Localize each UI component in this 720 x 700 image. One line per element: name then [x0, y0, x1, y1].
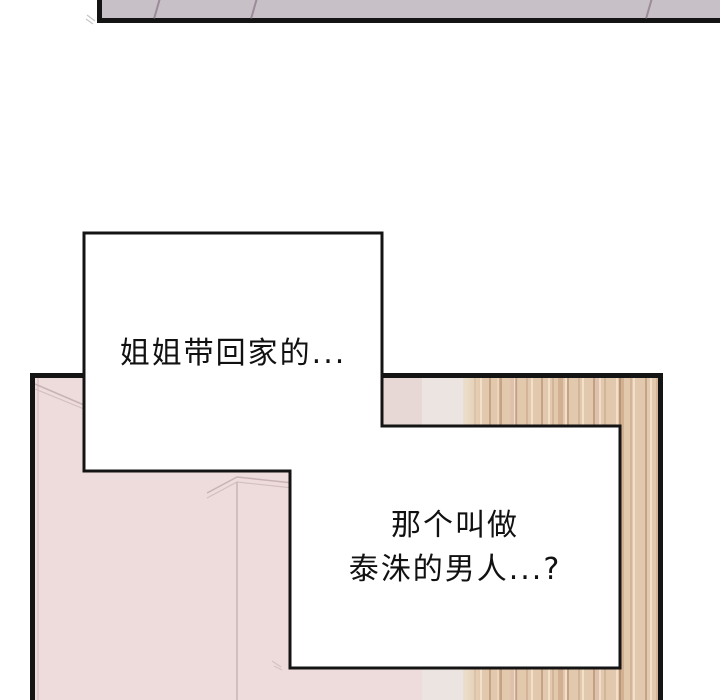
speech-bubble-2-line-2: 泰洙的男人...? [290, 548, 620, 592]
comic-page: 姐姐带回家的... 那个叫做 泰洙的男人...? [0, 0, 720, 700]
sketch-marks-panel-corner [86, 15, 95, 24]
speech-bubble-2-line-1: 那个叫做 [290, 504, 620, 548]
speech-bubble-1-text: 姐姐带回家的... [84, 336, 382, 372]
speech-bubble-2-text: 那个叫做 泰洙的男人...? [290, 504, 620, 592]
sketch-marks-bubble-corner [272, 661, 282, 670]
speech-bubble-union [84, 233, 620, 668]
